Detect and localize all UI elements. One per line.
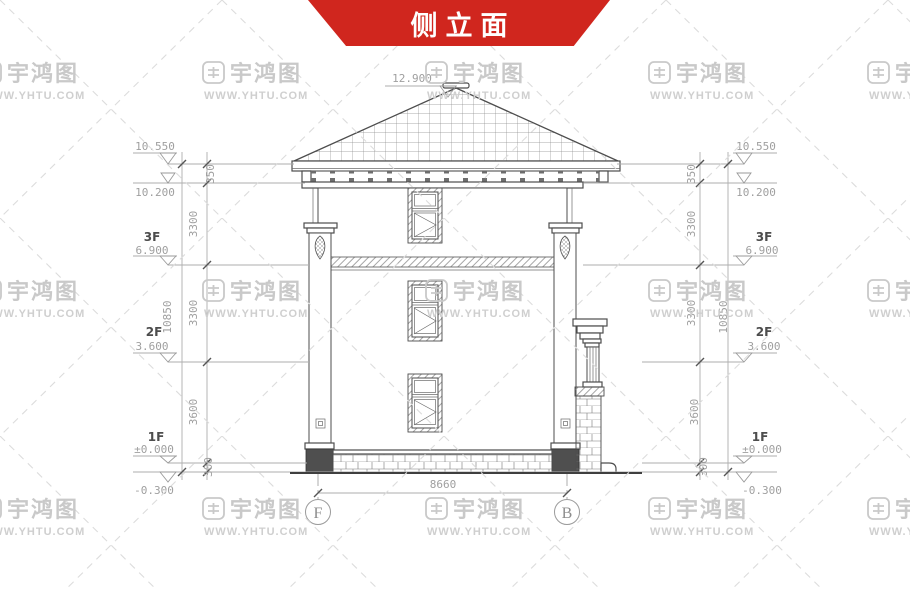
watermark-url: WWW.YHTU.COM — [204, 308, 308, 320]
watermark-brand: 宇鸿图 — [453, 279, 525, 304]
watermark-unit: 宇鸿图WWW.YHTU.COM — [0, 279, 85, 320]
watermark-url: WWW.YHTU.COM — [869, 308, 910, 320]
elevation-drawing: 350 3300 3300 3600 300 10850 10.550 10.2… — [0, 0, 910, 589]
watermark-brand: 宇鸿图 — [676, 279, 748, 304]
drawing-title: 侧立面 — [403, 4, 516, 43]
watermark-unit: 宇鸿图WWW.YHTU.COM — [0, 497, 85, 538]
watermark-brand: 宇鸿图 — [230, 279, 302, 304]
watermark-brand: 宇鸿图 — [7, 61, 79, 86]
watermark-url: WWW.YHTU.COM — [427, 526, 531, 538]
watermark-url: WWW.YHTU.COM — [650, 526, 754, 538]
watermark-url: WWW.YHTU.COM — [869, 90, 910, 102]
watermark-url: WWW.YHTU.COM — [427, 308, 531, 320]
watermark-url: WWW.YHTU.COM — [204, 526, 308, 538]
watermark-unit: 宇鸿图WWW.YHTU.COM — [0, 61, 85, 102]
drawing-sheet: 350 3300 3300 3600 300 10850 10.550 10.2… — [0, 0, 910, 589]
watermark-brand: 宇鸿图 — [895, 61, 910, 86]
watermark-url: WWW.YHTU.COM — [0, 526, 85, 538]
watermark-brand: 宇鸿图 — [230, 61, 302, 86]
watermark-brand: 宇鸿图 — [676, 497, 748, 522]
watermark-url: WWW.YHTU.COM — [0, 308, 85, 320]
watermark-url: WWW.YHTU.COM — [427, 90, 531, 102]
title-banner: 侧立面 — [308, 0, 610, 46]
watermark-url: WWW.YHTU.COM — [650, 90, 754, 102]
watermark-url: WWW.YHTU.COM — [204, 90, 308, 102]
watermark-url: WWW.YHTU.COM — [869, 526, 910, 538]
watermark-brand: 宇鸿图 — [7, 279, 79, 304]
watermark-brand: 宇鸿图 — [895, 497, 910, 522]
watermark-url: WWW.YHTU.COM — [650, 308, 754, 320]
watermark-brand: 宇鸿图 — [895, 279, 910, 304]
watermark-brand: 宇鸿图 — [453, 497, 525, 522]
watermark-url: WWW.YHTU.COM — [0, 90, 85, 102]
watermark-brand: 宇鸿图 — [453, 61, 525, 86]
watermark-brand: 宇鸿图 — [676, 61, 748, 86]
watermark-brand: 宇鸿图 — [230, 497, 302, 522]
watermark-brand: 宇鸿图 — [7, 497, 79, 522]
